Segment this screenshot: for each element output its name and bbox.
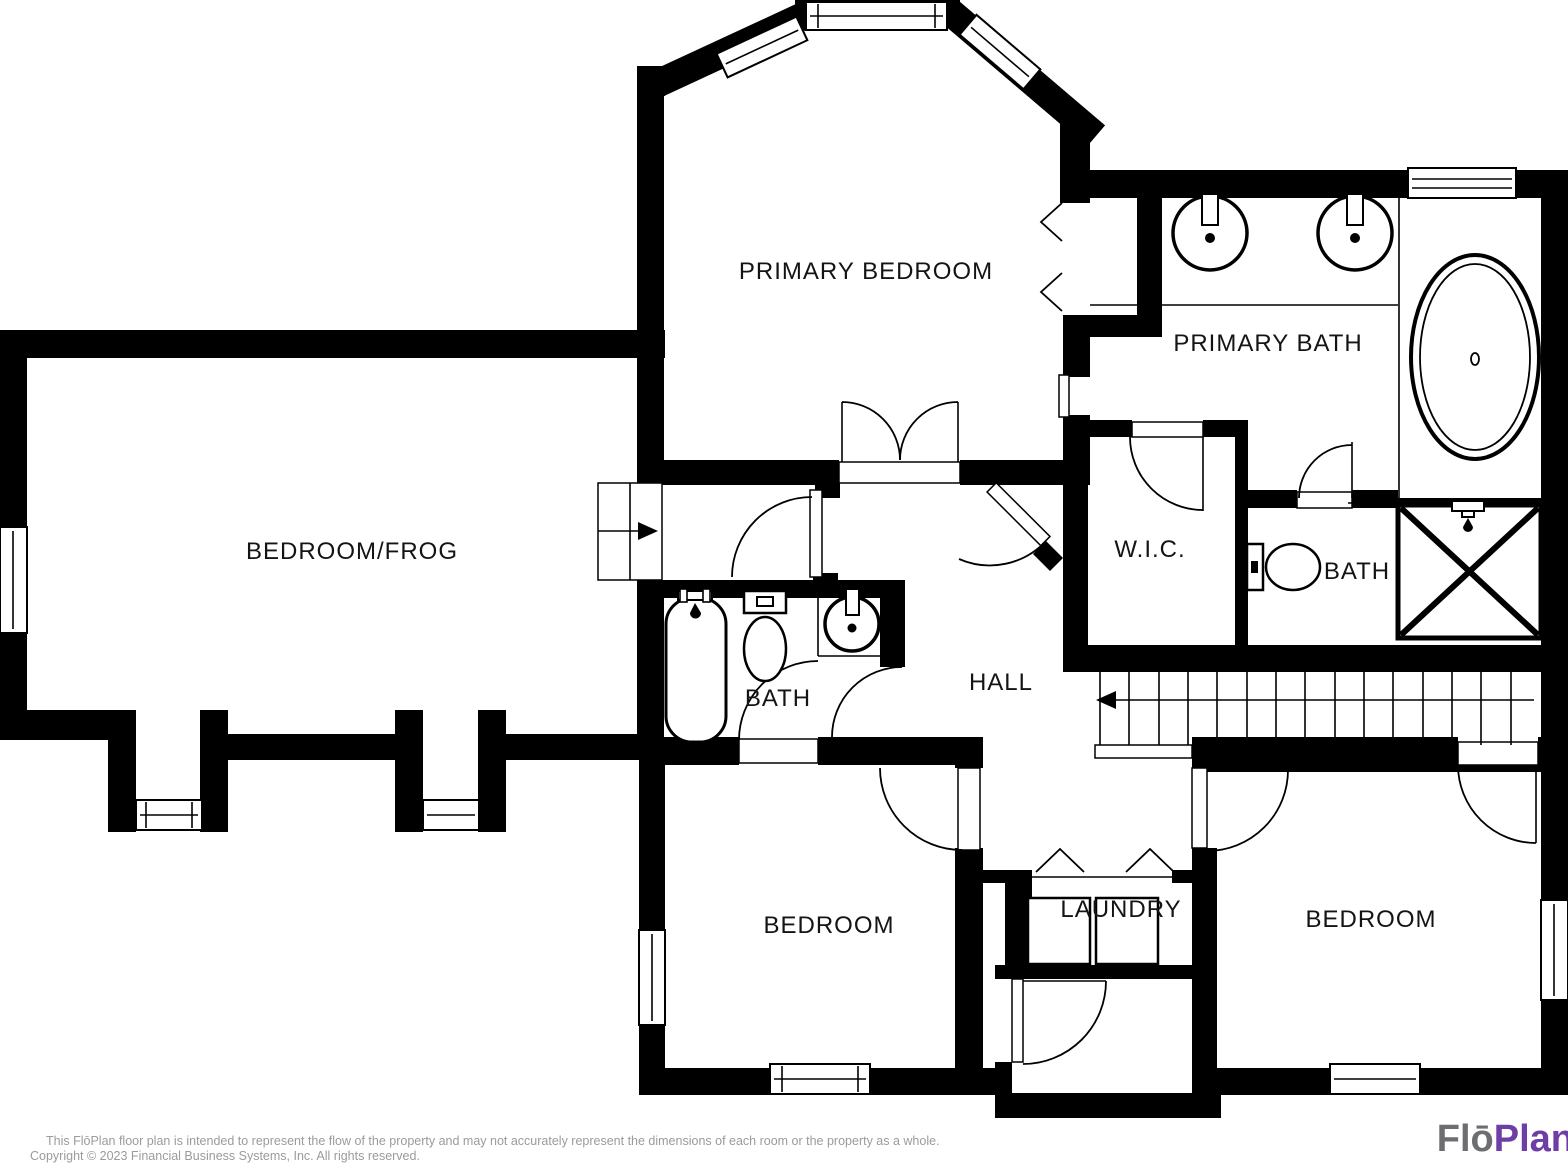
floplan-logo: FlōPlan [1437, 1118, 1568, 1161]
door-swing-icon [1297, 442, 1352, 508]
window-icon [136, 800, 202, 830]
floor-plan-page: PRIMARY BEDROOM PRIMARY BATH BEDROOM/FRO… [0, 0, 1568, 1168]
disclaimer: This FlōPlan floor plan is intended to r… [0, 1134, 1568, 1164]
window-icon [806, 2, 947, 30]
window-icon [1541, 900, 1568, 1000]
bifold-door-icon [1041, 203, 1062, 311]
door-swing-icon [739, 661, 818, 763]
window-icon [639, 930, 665, 1025]
toilet-icon [744, 591, 786, 681]
window-icon [1330, 1064, 1420, 1094]
door-swing-icon [1012, 979, 1106, 1064]
window-icon [1408, 168, 1516, 198]
room-label-bedroom-lower-right: BEDROOM [1305, 906, 1436, 933]
vanity-sink-icon [1090, 194, 1398, 305]
room-label-hall: HALL [969, 669, 1033, 696]
staircase-down-arrow-icon [1096, 691, 1534, 709]
room-label-bath-center: BATH [745, 685, 811, 712]
window-icon [960, 15, 1041, 89]
door-swing-icon [880, 768, 980, 850]
bifold-door-icon [1032, 849, 1192, 877]
room-label-bedroom-frog: BEDROOM/FROG [246, 538, 458, 565]
room-label-primary-bedroom: PRIMARY BEDROOM [739, 258, 993, 285]
room-label-primary-bath: PRIMARY BATH [1173, 330, 1362, 357]
floor-plan-svg: PRIMARY BEDROOM PRIMARY BATH BEDROOM/FRO… [0, 0, 1568, 1168]
bathtub-icon [666, 589, 726, 742]
room-label-wic: W.I.C. [1114, 536, 1185, 563]
door-swing-icon [1458, 742, 1538, 843]
staircase-icon [598, 483, 662, 580]
door-swing-icon [1130, 422, 1203, 511]
toilet-icon [1247, 544, 1320, 590]
door-swing-icon [832, 667, 902, 737]
oval-bathtub-icon [1399, 198, 1539, 498]
room-label-bath-right: BATH [1324, 558, 1390, 585]
disclaimer-line-1: This FlōPlan floor plan is intended to r… [46, 1134, 1568, 1149]
window-icon [0, 527, 27, 633]
door-swing-icon [1192, 768, 1288, 851]
double-door-swing-icon [839, 402, 960, 483]
floplan-logo-purple: Plan [1494, 1118, 1568, 1160]
window-icon [770, 1064, 870, 1094]
room-label-laundry: LAUNDRY [1060, 896, 1181, 923]
window-icon [423, 800, 479, 830]
pocket-door-icon [1059, 375, 1069, 417]
room-label-bedroom-lower-left: BEDROOM [763, 912, 894, 939]
door-swing-icon [732, 490, 822, 577]
disclaimer-line-2: Copyright © 2023 Financial Business Syst… [30, 1149, 1568, 1164]
floplan-logo-gray: Flō [1437, 1118, 1494, 1160]
